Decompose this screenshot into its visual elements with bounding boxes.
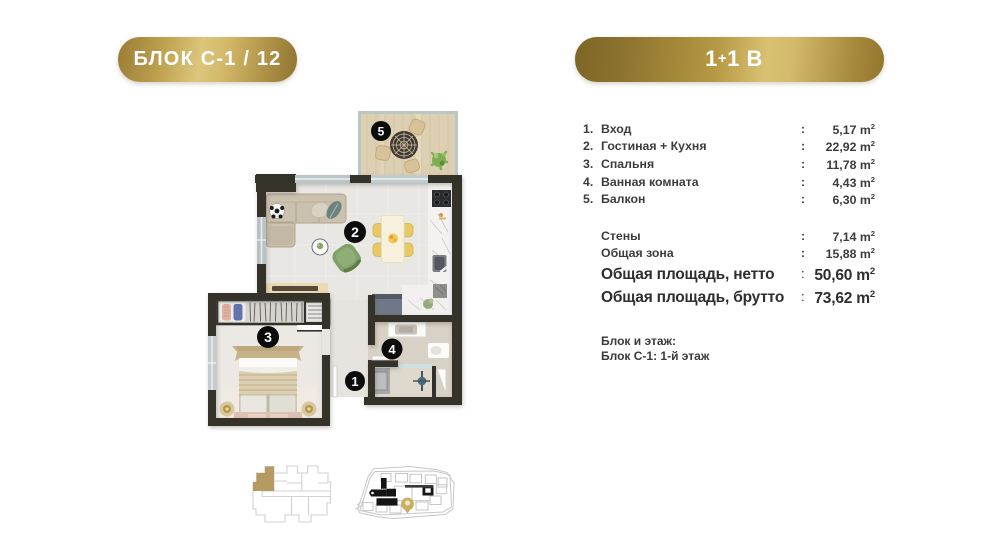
svg-text:1: 1 — [351, 374, 358, 389]
svg-text:3: 3 — [264, 329, 272, 345]
svg-text:4: 4 — [388, 342, 396, 357]
